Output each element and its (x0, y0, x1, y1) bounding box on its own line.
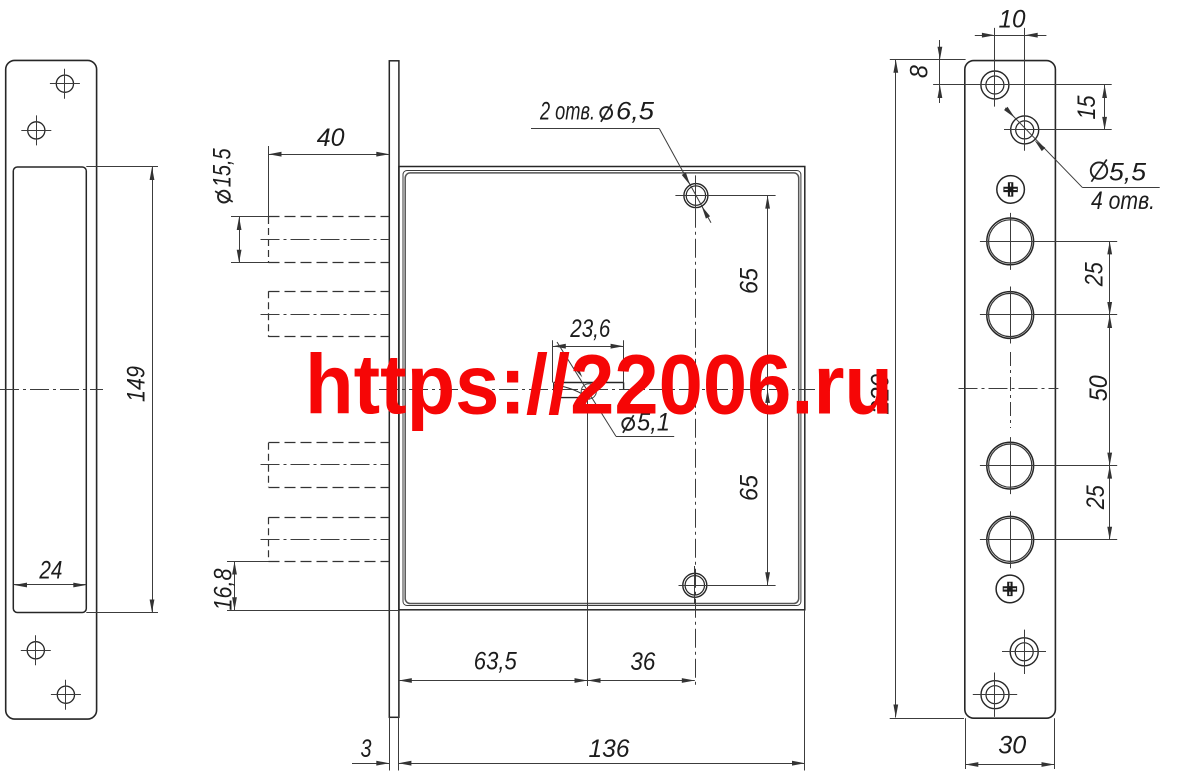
svg-text:15: 15 (1073, 95, 1101, 119)
svg-text:https://22006.ru: https://22006.ru (305, 337, 893, 431)
svg-text:65: 65 (736, 268, 764, 294)
svg-text:50: 50 (1085, 375, 1113, 401)
svg-text:149: 149 (123, 366, 151, 402)
svg-text:25: 25 (1081, 262, 1109, 287)
svg-text:24: 24 (39, 557, 63, 585)
svg-text:10: 10 (999, 5, 1026, 33)
svg-text:40: 40 (317, 124, 345, 152)
svg-text:3: 3 (361, 735, 372, 763)
svg-text:16,8: 16,8 (210, 568, 238, 610)
svg-text:30: 30 (998, 732, 1026, 760)
svg-text:8: 8 (906, 65, 934, 78)
svg-text:4 отв.: 4 отв. (1091, 187, 1155, 215)
svg-text:25: 25 (1082, 485, 1110, 510)
svg-text:36: 36 (630, 648, 655, 676)
svg-text:6,5: 6,5 (616, 98, 654, 126)
svg-text:5,5: 5,5 (1109, 159, 1146, 187)
svg-text:136: 136 (589, 735, 630, 763)
svg-text:2 отв.: 2 отв. (539, 98, 595, 126)
svg-text:65: 65 (736, 475, 764, 501)
svg-text:15,5: 15,5 (209, 148, 237, 187)
svg-text:63,5: 63,5 (474, 648, 517, 676)
